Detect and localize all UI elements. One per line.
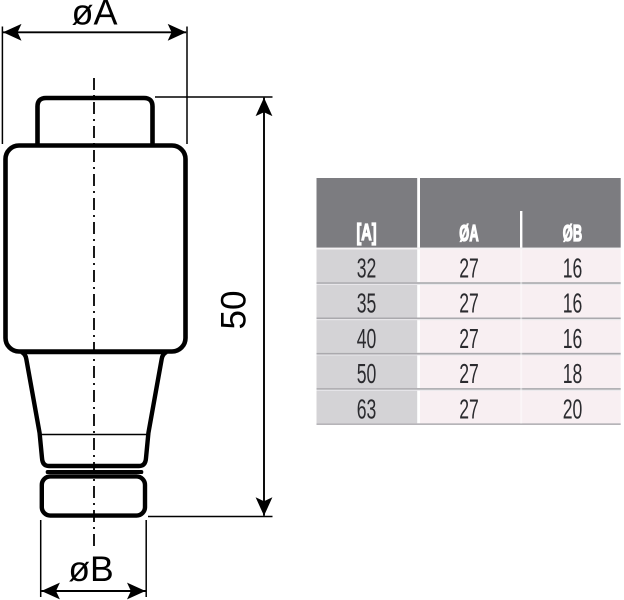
svg-text:32: 32 xyxy=(357,252,377,283)
svg-text:[A]: [A] xyxy=(356,221,376,246)
svg-text:63: 63 xyxy=(357,393,377,424)
svg-text:øA: øA xyxy=(71,0,117,33)
svg-text:27: 27 xyxy=(459,393,479,424)
svg-text:40: 40 xyxy=(357,323,377,354)
svg-text:øB: øB xyxy=(68,549,113,589)
svg-text:ØA: ØA xyxy=(459,221,479,247)
svg-text:50: 50 xyxy=(357,358,377,389)
svg-text:ØB: ØB xyxy=(563,221,582,247)
svg-text:35: 35 xyxy=(357,288,377,319)
svg-text:16: 16 xyxy=(563,252,583,283)
svg-text:27: 27 xyxy=(459,252,479,283)
svg-text:27: 27 xyxy=(459,358,479,389)
svg-text:18: 18 xyxy=(563,358,583,389)
svg-text:50: 50 xyxy=(215,291,254,330)
svg-text:16: 16 xyxy=(563,323,583,354)
svg-text:16: 16 xyxy=(563,288,583,319)
svg-text:27: 27 xyxy=(459,288,479,319)
svg-text:20: 20 xyxy=(563,393,583,424)
svg-text:27: 27 xyxy=(459,323,479,354)
